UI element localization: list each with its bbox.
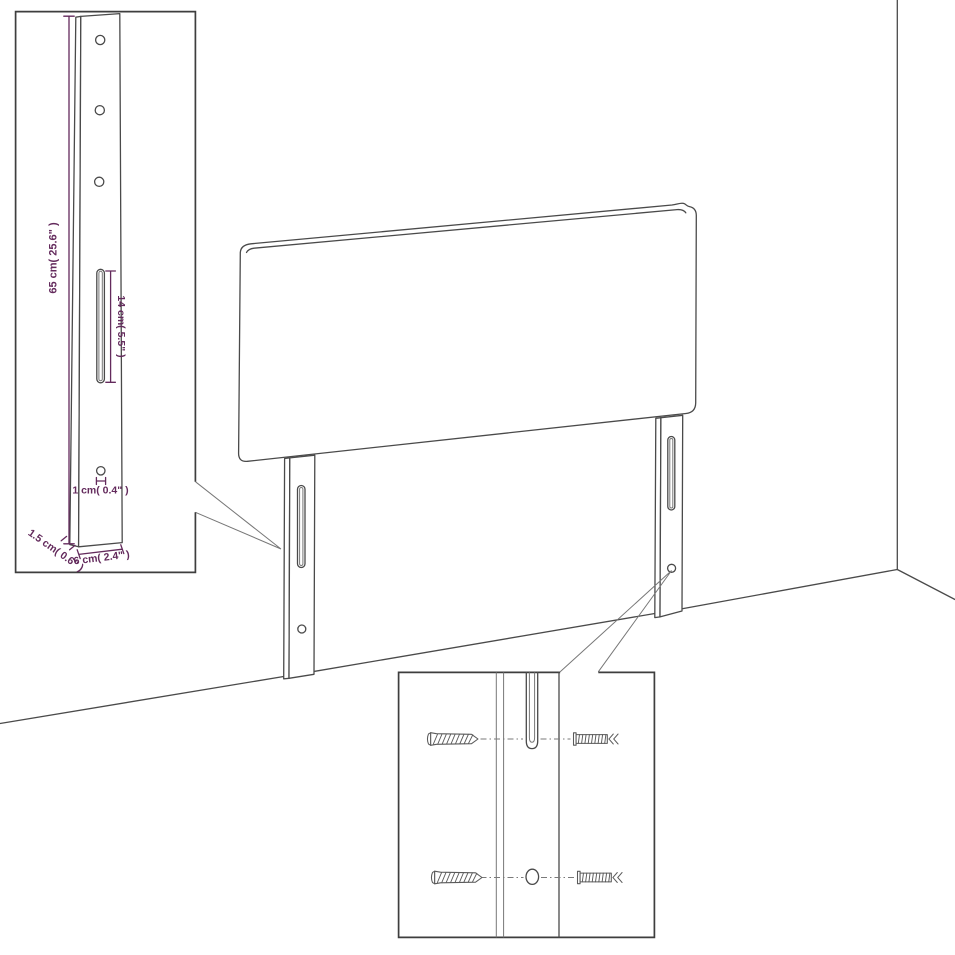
screw-icon: [427, 733, 478, 746]
label-leg-height: 65 cm( 25.6" ): [48, 222, 60, 294]
callout-wedge-left-inset: [195, 482, 281, 549]
leg-right-front-face: [660, 415, 683, 617]
label-slot-length: 14 cm( 5.5" ): [115, 295, 127, 357]
headboard-panel: [239, 203, 697, 461]
diagram-canvas: 65 cm( 25.6" ) 14 cm( 5.5" ) 1 cm( 0.4" …: [0, 0, 955, 955]
callout-wedge-bottom-inset: [560, 571, 671, 672]
mounting-detail-inset: [399, 672, 655, 937]
label-hole-diameter: 1 cm( 0.4" ): [72, 485, 128, 497]
product-dimension-diagram: 65 cm( 25.6" ) 14 cm( 5.5" ) 1 cm( 0.4" …: [0, 0, 955, 955]
headboard-leg-left: [284, 455, 315, 679]
screw-icon: [431, 871, 482, 884]
leg-dimension-inset: 65 cm( 25.6" ) 14 cm( 5.5" ) 1 cm( 0.4" …: [16, 12, 196, 575]
leg-left-front-face: [289, 455, 315, 678]
headboard-outline: [239, 203, 697, 461]
